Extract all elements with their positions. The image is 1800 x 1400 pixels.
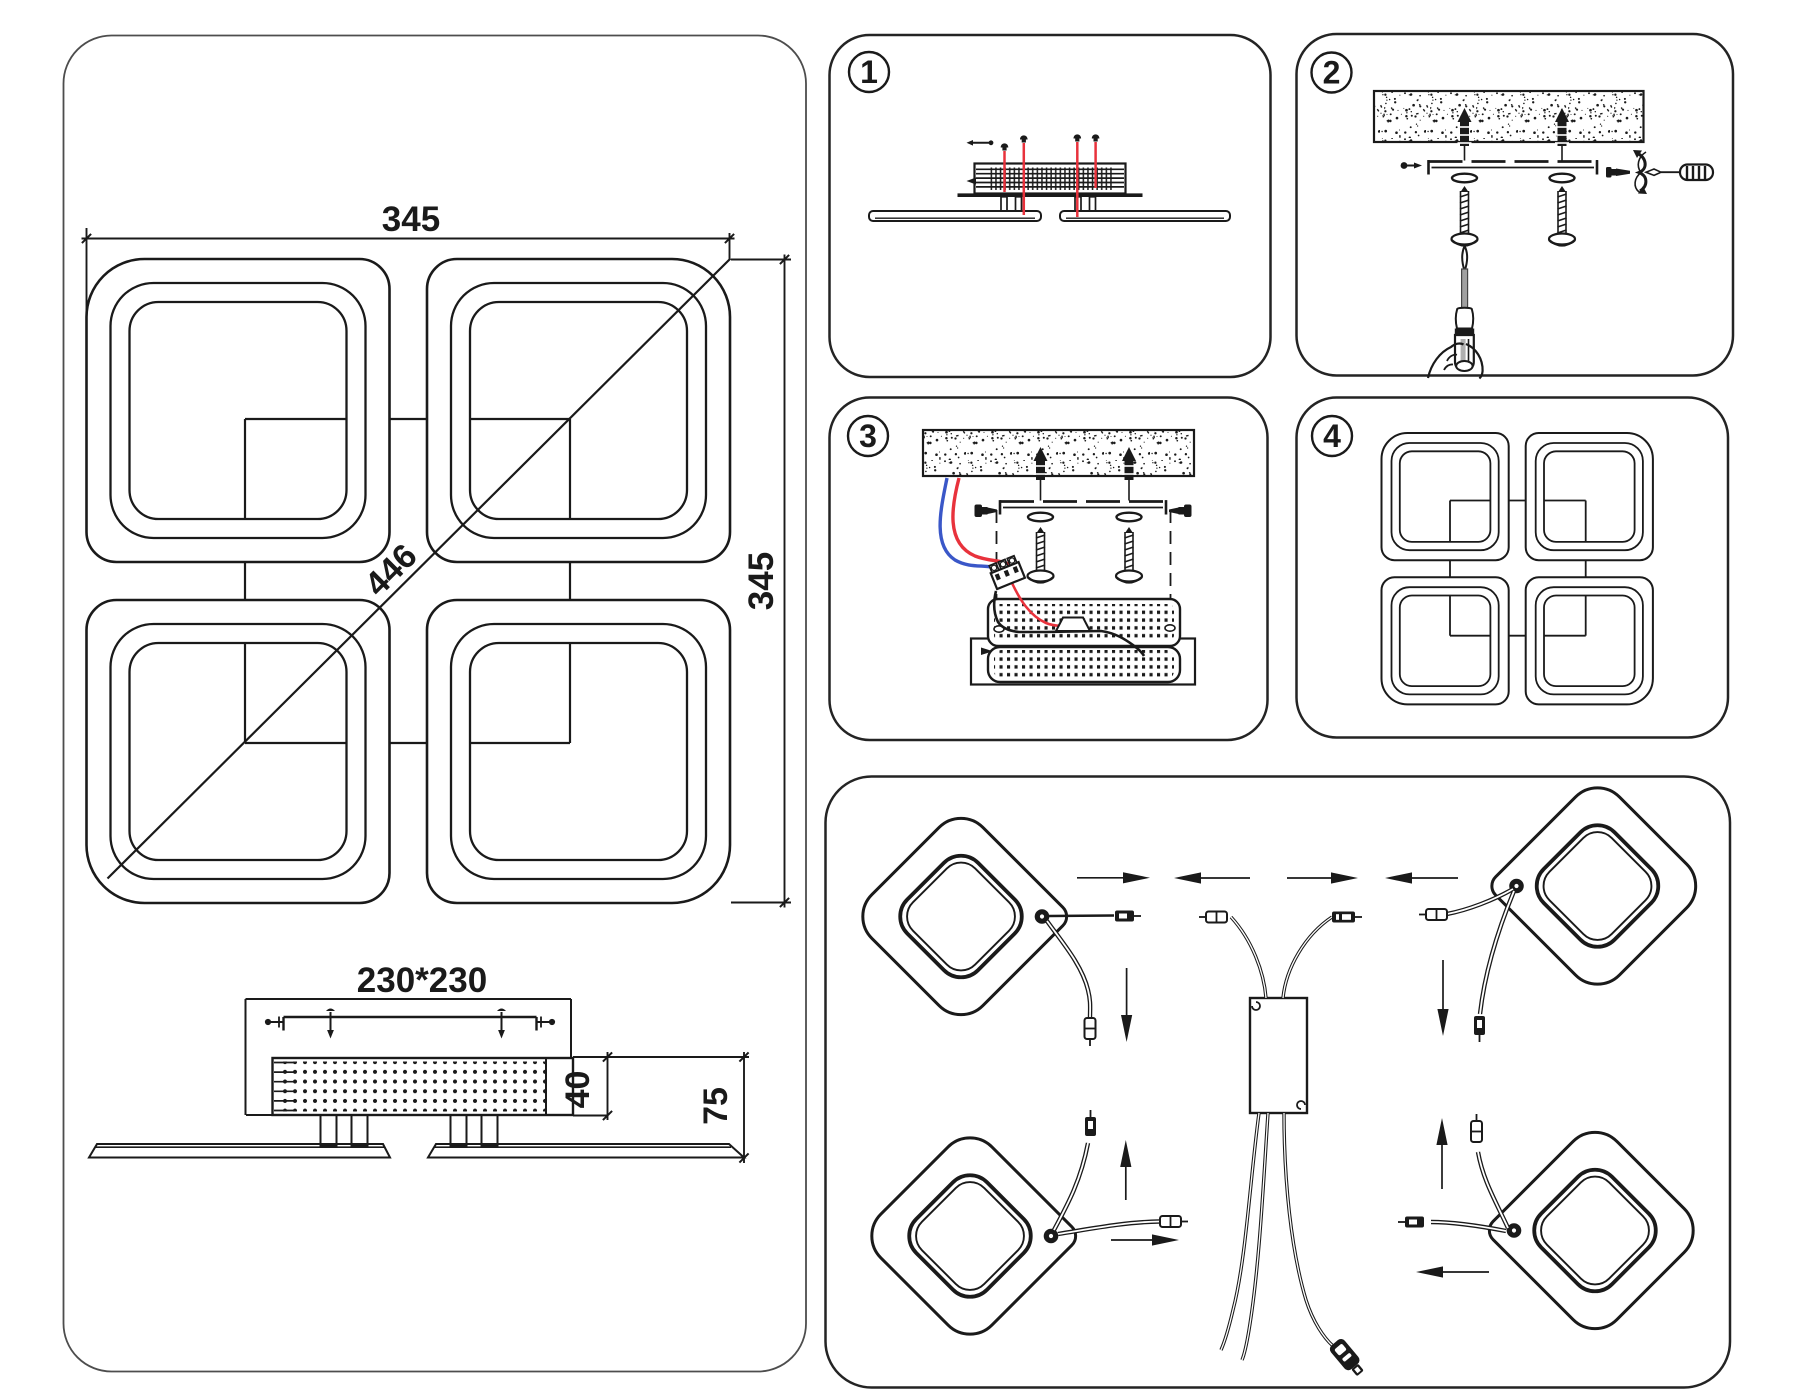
svg-text:345: 345 bbox=[742, 552, 781, 610]
svg-text:75: 75 bbox=[697, 1087, 735, 1125]
svg-text:2: 2 bbox=[1323, 55, 1341, 91]
svg-text:3: 3 bbox=[859, 418, 877, 454]
svg-text:1: 1 bbox=[860, 54, 878, 90]
svg-text:345: 345 bbox=[382, 200, 440, 239]
svg-text:4: 4 bbox=[1323, 418, 1341, 454]
svg-text:230*230: 230*230 bbox=[357, 961, 487, 1000]
svg-text:40: 40 bbox=[559, 1071, 597, 1109]
